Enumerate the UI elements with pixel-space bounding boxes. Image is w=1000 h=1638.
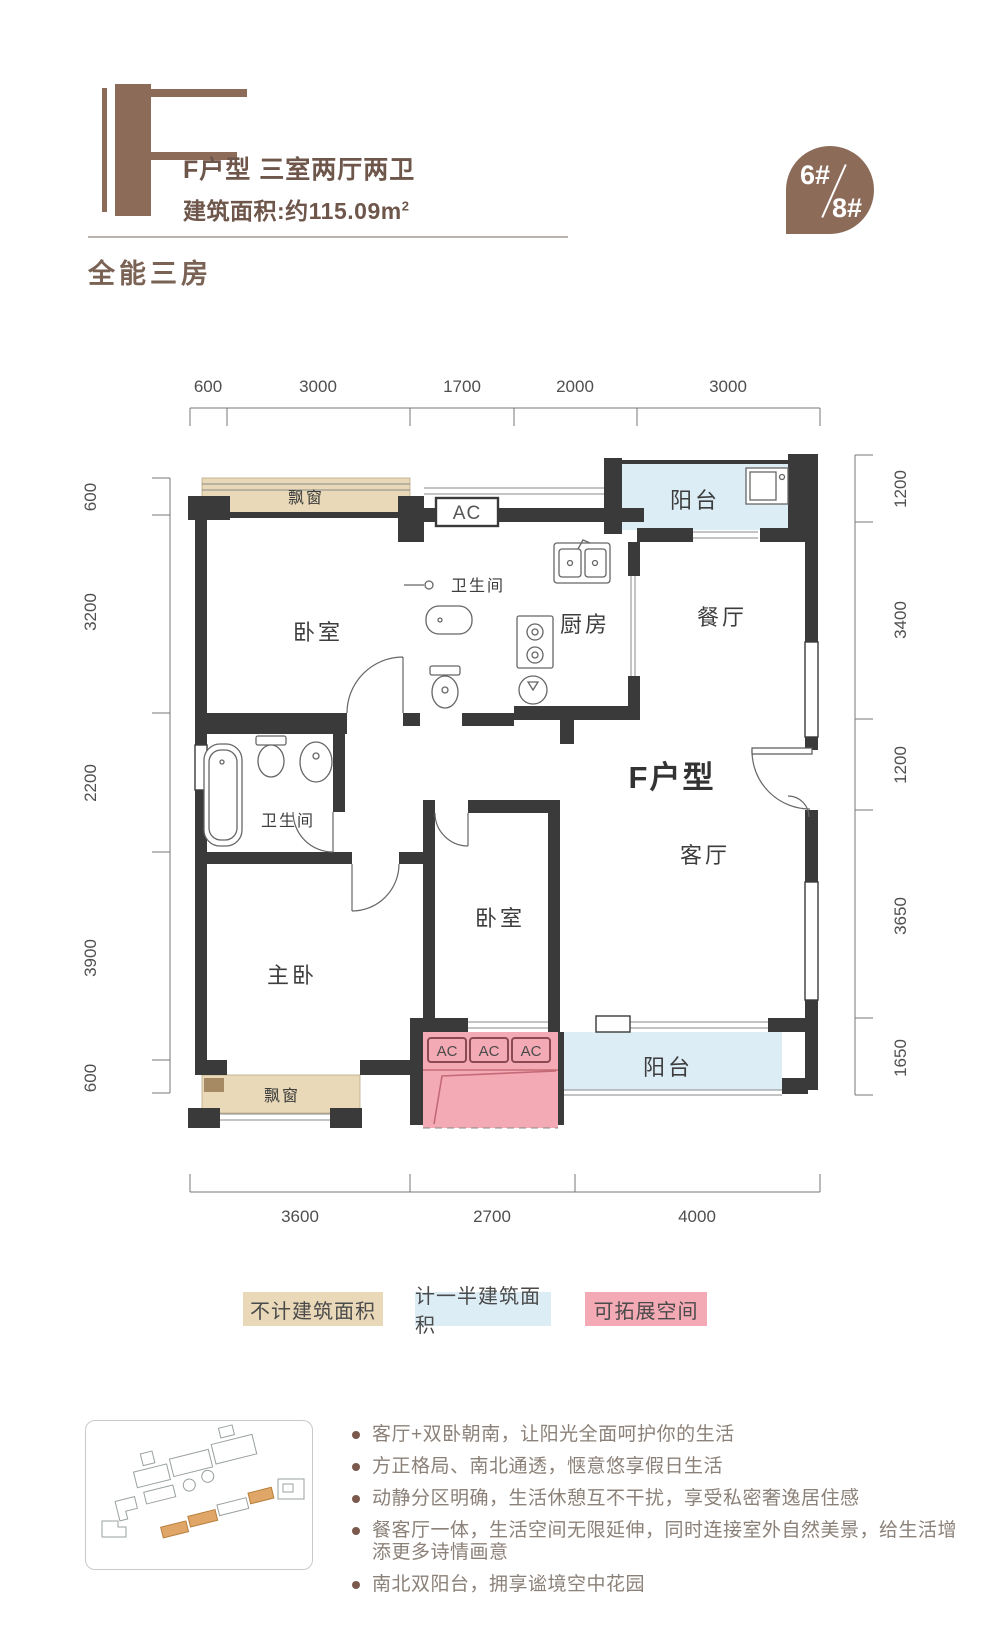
room-label-kitchen: 厨房 [560,612,610,637]
dim-top-1: 3000 [299,377,337,396]
unit-type-label: F户型 [629,760,716,795]
feature-text: 方正格局、南北通透，惬意悠享假日生活 [372,1456,723,1478]
feature-text: 南北双阳台，拥享谧境空中花园 [372,1574,645,1596]
door-marker-icon [404,581,433,589]
room-label-balcony-north: 阳台 [670,488,720,513]
site-plan-box [85,1420,313,1570]
room-label-master: 主卧 [267,963,317,988]
dim-right-3: 3650 [891,897,910,935]
bullet-icon [352,1495,360,1503]
ac-label-south-3: AC [521,1043,542,1060]
room-label-bay-north: 飘窗 [288,489,324,507]
bullet-icon [352,1463,360,1471]
dim-bottom-2: 4000 [678,1207,716,1226]
ac-label-north: AC [453,503,481,524]
basin-icon [300,742,332,782]
entrance-door [752,751,810,817]
dim-top-0: 600 [194,377,222,396]
feature-text: 餐客厅一体，生活空间无限延伸，同时连接室外自然美景，给生活增添更多诗情画意 [372,1520,962,1564]
legend-no-area: 不计建筑面积 [243,1292,383,1326]
dim-bottom-0: 3600 [281,1207,319,1226]
legend-half-area: 计一半建筑面积 [415,1292,551,1326]
feature-text: 动静分区明确，生活休憩互不干扰，享受私密奢逸居住感 [372,1488,860,1510]
room-label-bedroom1: 卧室 [293,620,343,645]
bullet-icon [352,1431,360,1439]
dim-left-0: 600 [81,483,100,511]
feature-text: 客厅+双卧朝南，让阳光全面呵护你的生活 [372,1424,735,1446]
feature-item: 客厅+双卧朝南，让阳光全面呵护你的生活 [352,1424,962,1446]
dim-right-4: 1650 [891,1039,910,1077]
room-label-bath2: 卫生间 [261,812,315,830]
room-label-dining: 餐厅 [697,605,747,630]
legend-expandable-label: 可拓展空间 [594,1295,699,1324]
legend-half-area-label: 计一半建筑面积 [415,1280,551,1338]
dim-right-1: 3400 [891,601,910,639]
room-label-living: 客厅 [680,843,730,868]
bullet-icon [352,1581,360,1589]
room-label-balcony-south: 阳台 [643,1055,693,1080]
water-heater-icon [519,676,547,704]
bay-step [204,1078,224,1092]
entrance-door-leaf [752,748,812,754]
dim-top-4: 3000 [709,377,747,396]
bathtub2-icon [204,744,242,846]
ac-label-south-2: AC [479,1043,500,1060]
room-label-bay-south: 飘窗 [264,1087,300,1105]
room-label-bedroom2: 卧室 [475,906,525,931]
legend-expandable: 可拓展空间 [585,1292,707,1326]
toilet2-icon [256,736,286,777]
dim-bottom-1: 2700 [473,1207,511,1226]
dim-left-2: 2200 [81,764,100,802]
room-label-bath1: 卫生间 [451,577,505,595]
feature-list: 客厅+双卧朝南，让阳光全面呵护你的生活 方正格局、南北通透，惬意悠享假日生活 动… [352,1424,962,1606]
feature-item: 南北双阳台，拥享谧境空中花园 [352,1574,962,1596]
washer-icon [746,468,788,504]
dim-top-2: 1700 [443,377,481,396]
dim-left-4: 600 [81,1064,100,1092]
dim-left-1: 3200 [81,593,100,631]
feature-item: 餐客厅一体，生活空间无限延伸，同时连接室外自然美景，给生活增添更多诗情画意 [352,1520,962,1564]
bullet-icon [352,1527,360,1535]
page: { "header": { "type_letter": "F", "title… [0,0,1000,1638]
bathtub-icon [426,606,472,634]
kitchen-sink-icon [554,540,610,583]
feature-item: 方正格局、南北通透，惬意悠享假日生活 [352,1456,962,1478]
dim-right-0: 1200 [891,470,910,508]
dim-top-3: 2000 [556,377,594,396]
walls [188,454,818,1128]
ac-label-south-1: AC [437,1043,458,1060]
floor-plan: AC AC AC AC [0,0,1000,1240]
legend-no-area-label: 不计建筑面积 [250,1295,376,1324]
stove-icon [517,616,553,668]
dim-left-3: 3900 [81,939,100,977]
site-plan-map [86,1421,312,1569]
toilet-icon [430,666,460,708]
dim-right-2: 1200 [891,746,910,784]
feature-item: 动静分区明确，生活休憩互不干扰，享受私密奢逸居住感 [352,1488,962,1510]
